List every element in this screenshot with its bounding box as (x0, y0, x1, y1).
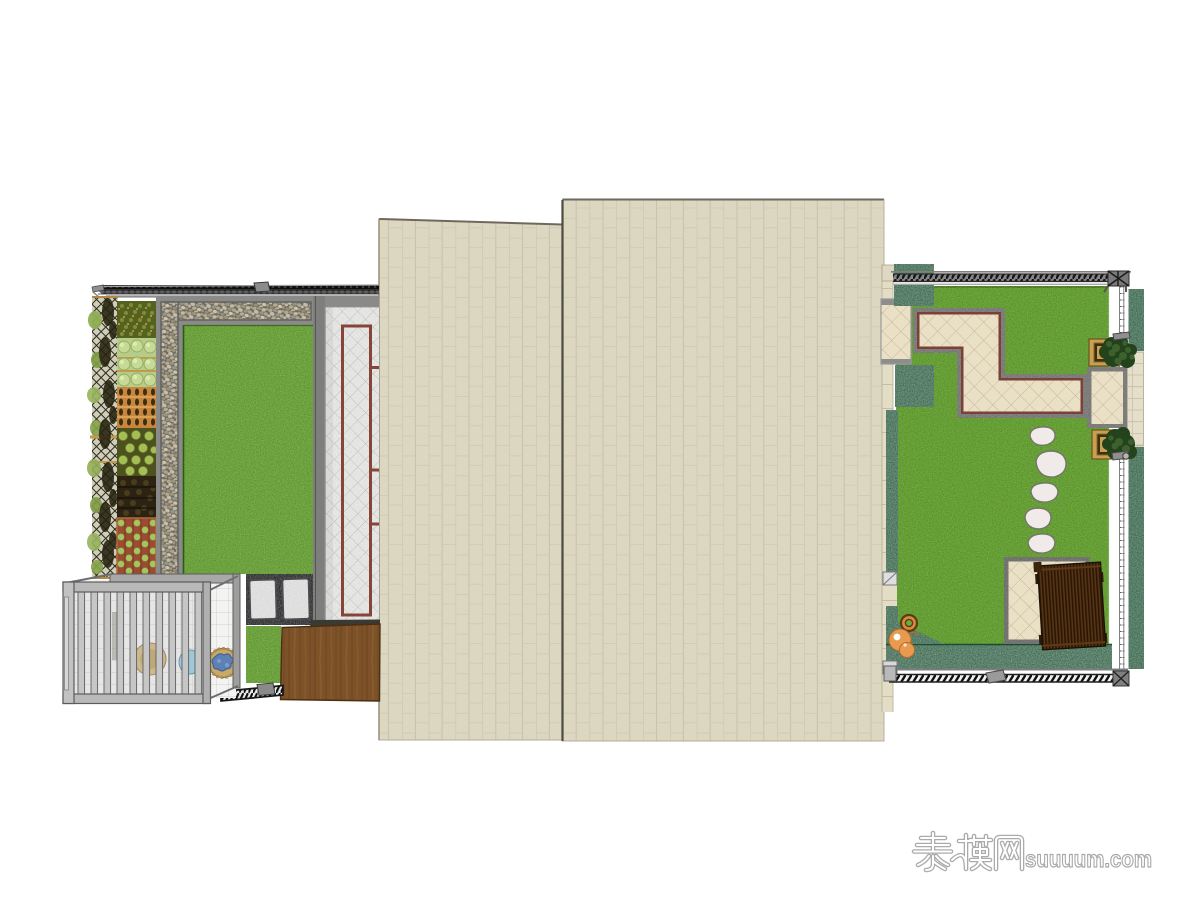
svg-text:suuuum.com: suuuum.com (1025, 846, 1152, 872)
